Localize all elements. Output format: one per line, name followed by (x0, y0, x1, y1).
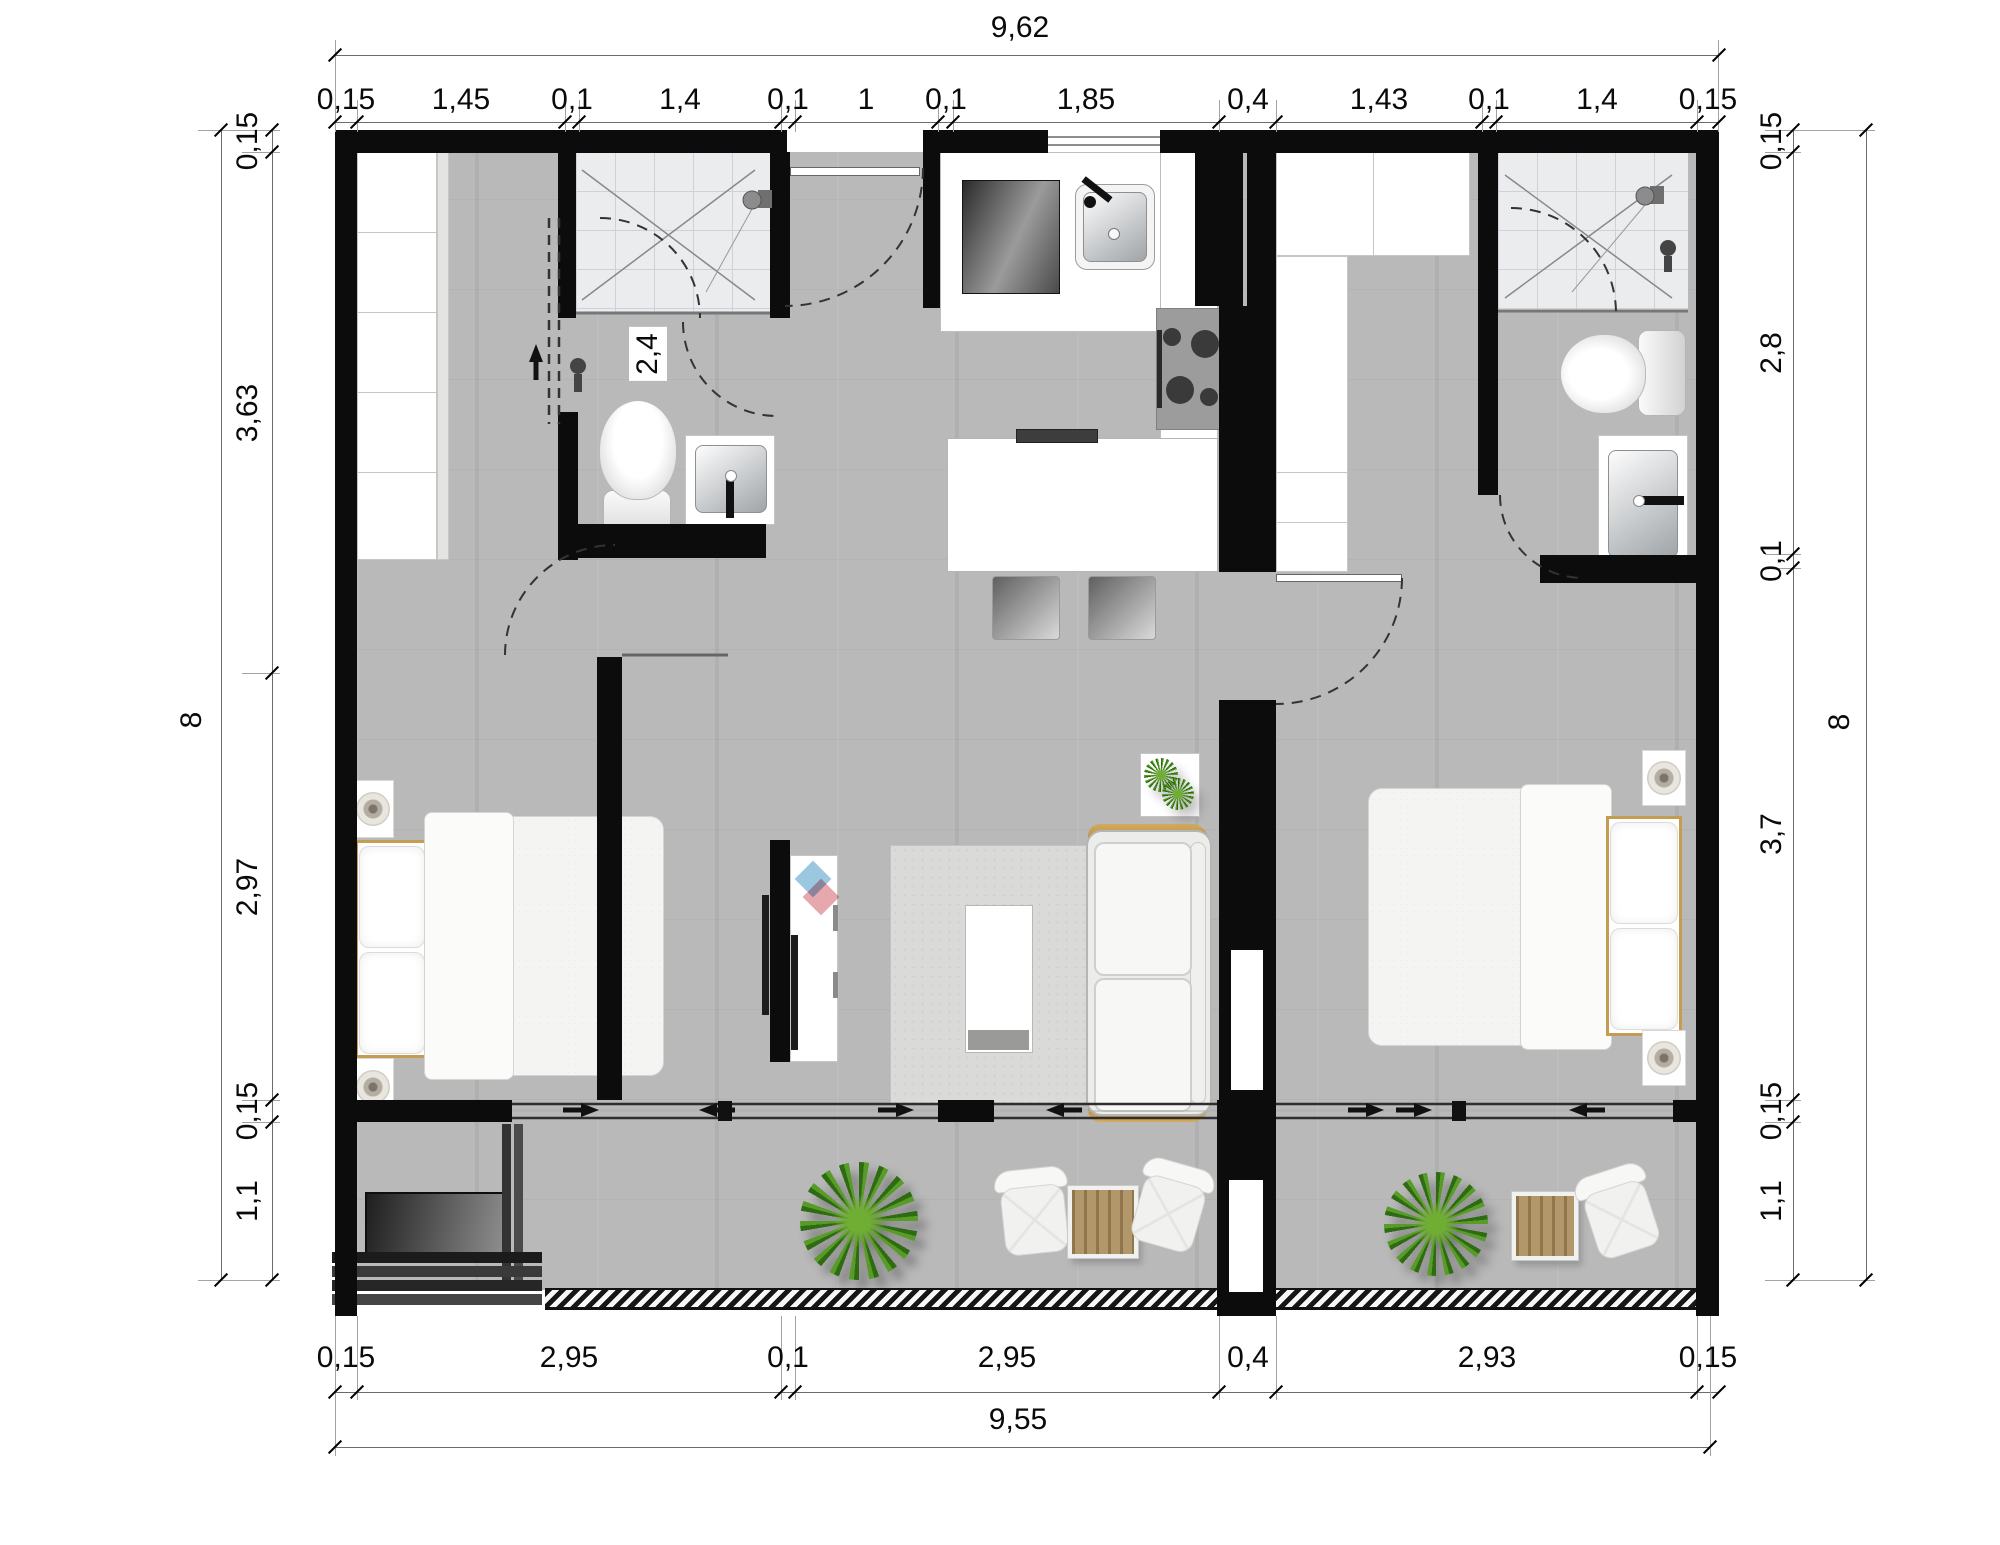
wardrobe-shelf-line (357, 392, 437, 393)
cooktop-burner (1166, 376, 1194, 404)
wall-middle-upper2 (1247, 152, 1276, 306)
dim-label: 0,1 (551, 83, 593, 117)
dim-line-right-segments (1793, 130, 1794, 1280)
dim-line-bottom-total (335, 1447, 1711, 1448)
wall-shower-left (770, 152, 790, 318)
dim-line-bottom-segments (335, 1392, 1719, 1393)
dim-label: 1,43 (1350, 83, 1408, 117)
dim-label: 0,4 (1227, 83, 1269, 117)
dim-label: 1,4 (659, 83, 701, 117)
dim-label: 1 (858, 83, 875, 117)
dim-label: 1,85 (1057, 83, 1115, 117)
dim-label: 0,15 (1755, 1082, 1789, 1140)
sofa-cushion (1094, 842, 1192, 976)
dim-label: 1,1 (231, 1180, 265, 1222)
cooktop-burner (1200, 388, 1218, 406)
dim-label: 2,8 (1755, 332, 1789, 374)
island-handle (1016, 429, 1098, 443)
wall-top (335, 130, 787, 153)
balcony-divider-panel (514, 1124, 523, 1288)
dim-label: 0,1 (767, 83, 809, 117)
extension-line (1765, 1280, 1875, 1281)
closet-shelf-line (1276, 472, 1348, 473)
lamp-icon (1647, 761, 1681, 795)
dim-label-bathroom-width: 2,4 (629, 327, 667, 381)
cabinet-handle (833, 905, 838, 931)
dim-label: 2,93 (1458, 1341, 1516, 1375)
lamp-icon (356, 792, 390, 826)
dim-label: 0,1 (1468, 83, 1510, 117)
bar-stool (1088, 576, 1156, 640)
lamp-icon (1647, 1041, 1681, 1075)
fridge-cabinet (962, 180, 1060, 294)
plant-icon (1384, 1172, 1488, 1276)
wall-niche (1231, 950, 1263, 1090)
pillow (359, 846, 425, 948)
chair-seat (999, 1183, 1070, 1257)
coffee-table-tray (968, 1030, 1029, 1050)
balcony-railing (545, 1288, 1696, 1310)
wall-middle (1219, 306, 1276, 572)
dim-label-left-total: 8 (175, 712, 209, 729)
plant-icon (800, 1162, 918, 1280)
suite-door-leaf (1276, 574, 1402, 582)
wardrobe-shelf-line (357, 472, 437, 473)
dim-label: 0,15 (231, 1082, 265, 1140)
bed-sheet-fold-left (424, 812, 514, 1080)
wall-top (1160, 130, 1719, 153)
wardrobe-shelf-line (357, 232, 437, 233)
shower-right (1498, 152, 1688, 312)
cooktop-handle (1157, 330, 1162, 408)
dim-label: 0,4 (1227, 1341, 1269, 1375)
cabinet-handle (833, 972, 838, 998)
dim-label: 0,15 (317, 83, 375, 117)
wall-left (335, 130, 357, 1316)
window-glass-line (1048, 144, 1160, 146)
wall-bathroom-left (558, 152, 576, 318)
closet-shelf-line (1276, 522, 1348, 523)
sofa (1086, 824, 1212, 1122)
lamp-icon (356, 1070, 390, 1104)
balcony-divider-panel (502, 1124, 511, 1288)
dim-label: 2,95 (540, 1341, 598, 1375)
divider-cabinet-wall (770, 840, 790, 1062)
wall-bedroom-left (597, 657, 622, 1100)
dim-label: 1,1 (1755, 1180, 1789, 1222)
dim-line-right-total (1866, 130, 1867, 1280)
toilet-right-bowl (1560, 334, 1646, 414)
window-band-wall (1673, 1100, 1696, 1122)
wall-right (1696, 130, 1719, 1316)
shower-left (576, 152, 770, 314)
extension-line (198, 1280, 280, 1281)
cooktop-burner (1191, 330, 1219, 358)
entry-door-leaf (790, 167, 920, 176)
divider-panel (762, 895, 769, 1015)
shutter-stack (332, 1280, 542, 1291)
extension-line (1219, 100, 1220, 132)
wardrobe-shelf-line (357, 312, 437, 313)
extension-line (335, 1316, 336, 1456)
dim-label: 1,4 (1576, 83, 1618, 117)
dim-line-left-total (221, 130, 222, 1280)
wardrobe-door-panel (437, 152, 449, 560)
pillow (1610, 928, 1678, 1030)
kitchen-island (947, 438, 1218, 572)
dim-label-right-total: 8 (1823, 714, 1857, 731)
wall-bathroom-left-bottom (558, 524, 766, 558)
dim-label: 3,63 (231, 384, 265, 442)
shutter-stack (332, 1252, 542, 1263)
dim-label: 2,97 (231, 858, 265, 916)
extension-line (1219, 1316, 1220, 1400)
window-band-wall (938, 1100, 994, 1122)
dim-label: 1,45 (432, 83, 490, 117)
window-band-wall (335, 1100, 512, 1122)
dim-line-top-segments (335, 122, 1719, 123)
shutter-stack (332, 1266, 542, 1277)
wall-middle-upper (1195, 152, 1243, 306)
dim-label: 3,7 (1755, 813, 1789, 855)
dim-line-left-segments (272, 130, 273, 1280)
extension-line (1276, 1316, 1277, 1400)
balcony-ac-unit (365, 1192, 505, 1254)
dim-label-bottom-total: 9,55 (989, 1403, 1047, 1437)
extension-line (242, 673, 280, 674)
closet-right-side (1276, 256, 1348, 572)
shutter-stack (332, 1294, 542, 1305)
wall-top (923, 130, 1048, 153)
dim-label: 0,1 (767, 1341, 809, 1375)
kitchen-window (1048, 131, 1160, 151)
sink-right-drain (1633, 495, 1645, 507)
dim-label: 0,15 (1679, 83, 1737, 117)
dim-label: 0,15 (1755, 112, 1789, 170)
wall-kitchen-stub (923, 152, 940, 308)
dim-label-top-total: 9,62 (991, 11, 1049, 45)
sofa-cushion (1094, 978, 1192, 1112)
dim-label: 0,15 (317, 1341, 375, 1375)
kitchen-faucet-base (1084, 196, 1096, 208)
kitchen-sink-drain (1108, 228, 1120, 240)
extension-line (1710, 1316, 1711, 1456)
dim-label: 0,15 (231, 112, 265, 170)
dim-label: 0,1 (925, 83, 967, 117)
dim-label: 0,1 (1755, 540, 1789, 582)
sink-left-faucet-icon (726, 476, 734, 518)
sofa-backrest (1190, 842, 1206, 1104)
bed-sheet-fold-right (1520, 784, 1612, 1050)
dim-line-top-total (335, 55, 1719, 56)
sink-left-drain (725, 470, 737, 482)
pillar-niche (1229, 1180, 1263, 1292)
cooktop-burner (1163, 328, 1181, 346)
window-glass-line (1048, 136, 1160, 138)
wall-bathroom-right-bottom (1540, 555, 1696, 583)
extension-line (1276, 100, 1277, 132)
divider-panel (791, 935, 798, 1050)
pillow (1610, 822, 1678, 924)
wall-bathroom-right (1478, 152, 1498, 495)
balcony-table (1068, 1186, 1138, 1258)
dim-label: 2,95 (978, 1341, 1036, 1375)
pillow (359, 952, 425, 1054)
balcony-chair (998, 1169, 1070, 1259)
bar-stool (992, 576, 1060, 640)
plant-icon (1162, 778, 1194, 810)
dim-label: 0,15 (1679, 1341, 1737, 1375)
closet-divider (1373, 152, 1374, 256)
balcony-table (1512, 1192, 1578, 1260)
toilet-left-bowl (599, 400, 677, 500)
floor-plan-canvas: 9,62 0,15 1,45 0,1 1,4 0,1 1 0,1 1,85 0,… (0, 0, 2000, 1545)
wardrobe-left (357, 152, 437, 560)
